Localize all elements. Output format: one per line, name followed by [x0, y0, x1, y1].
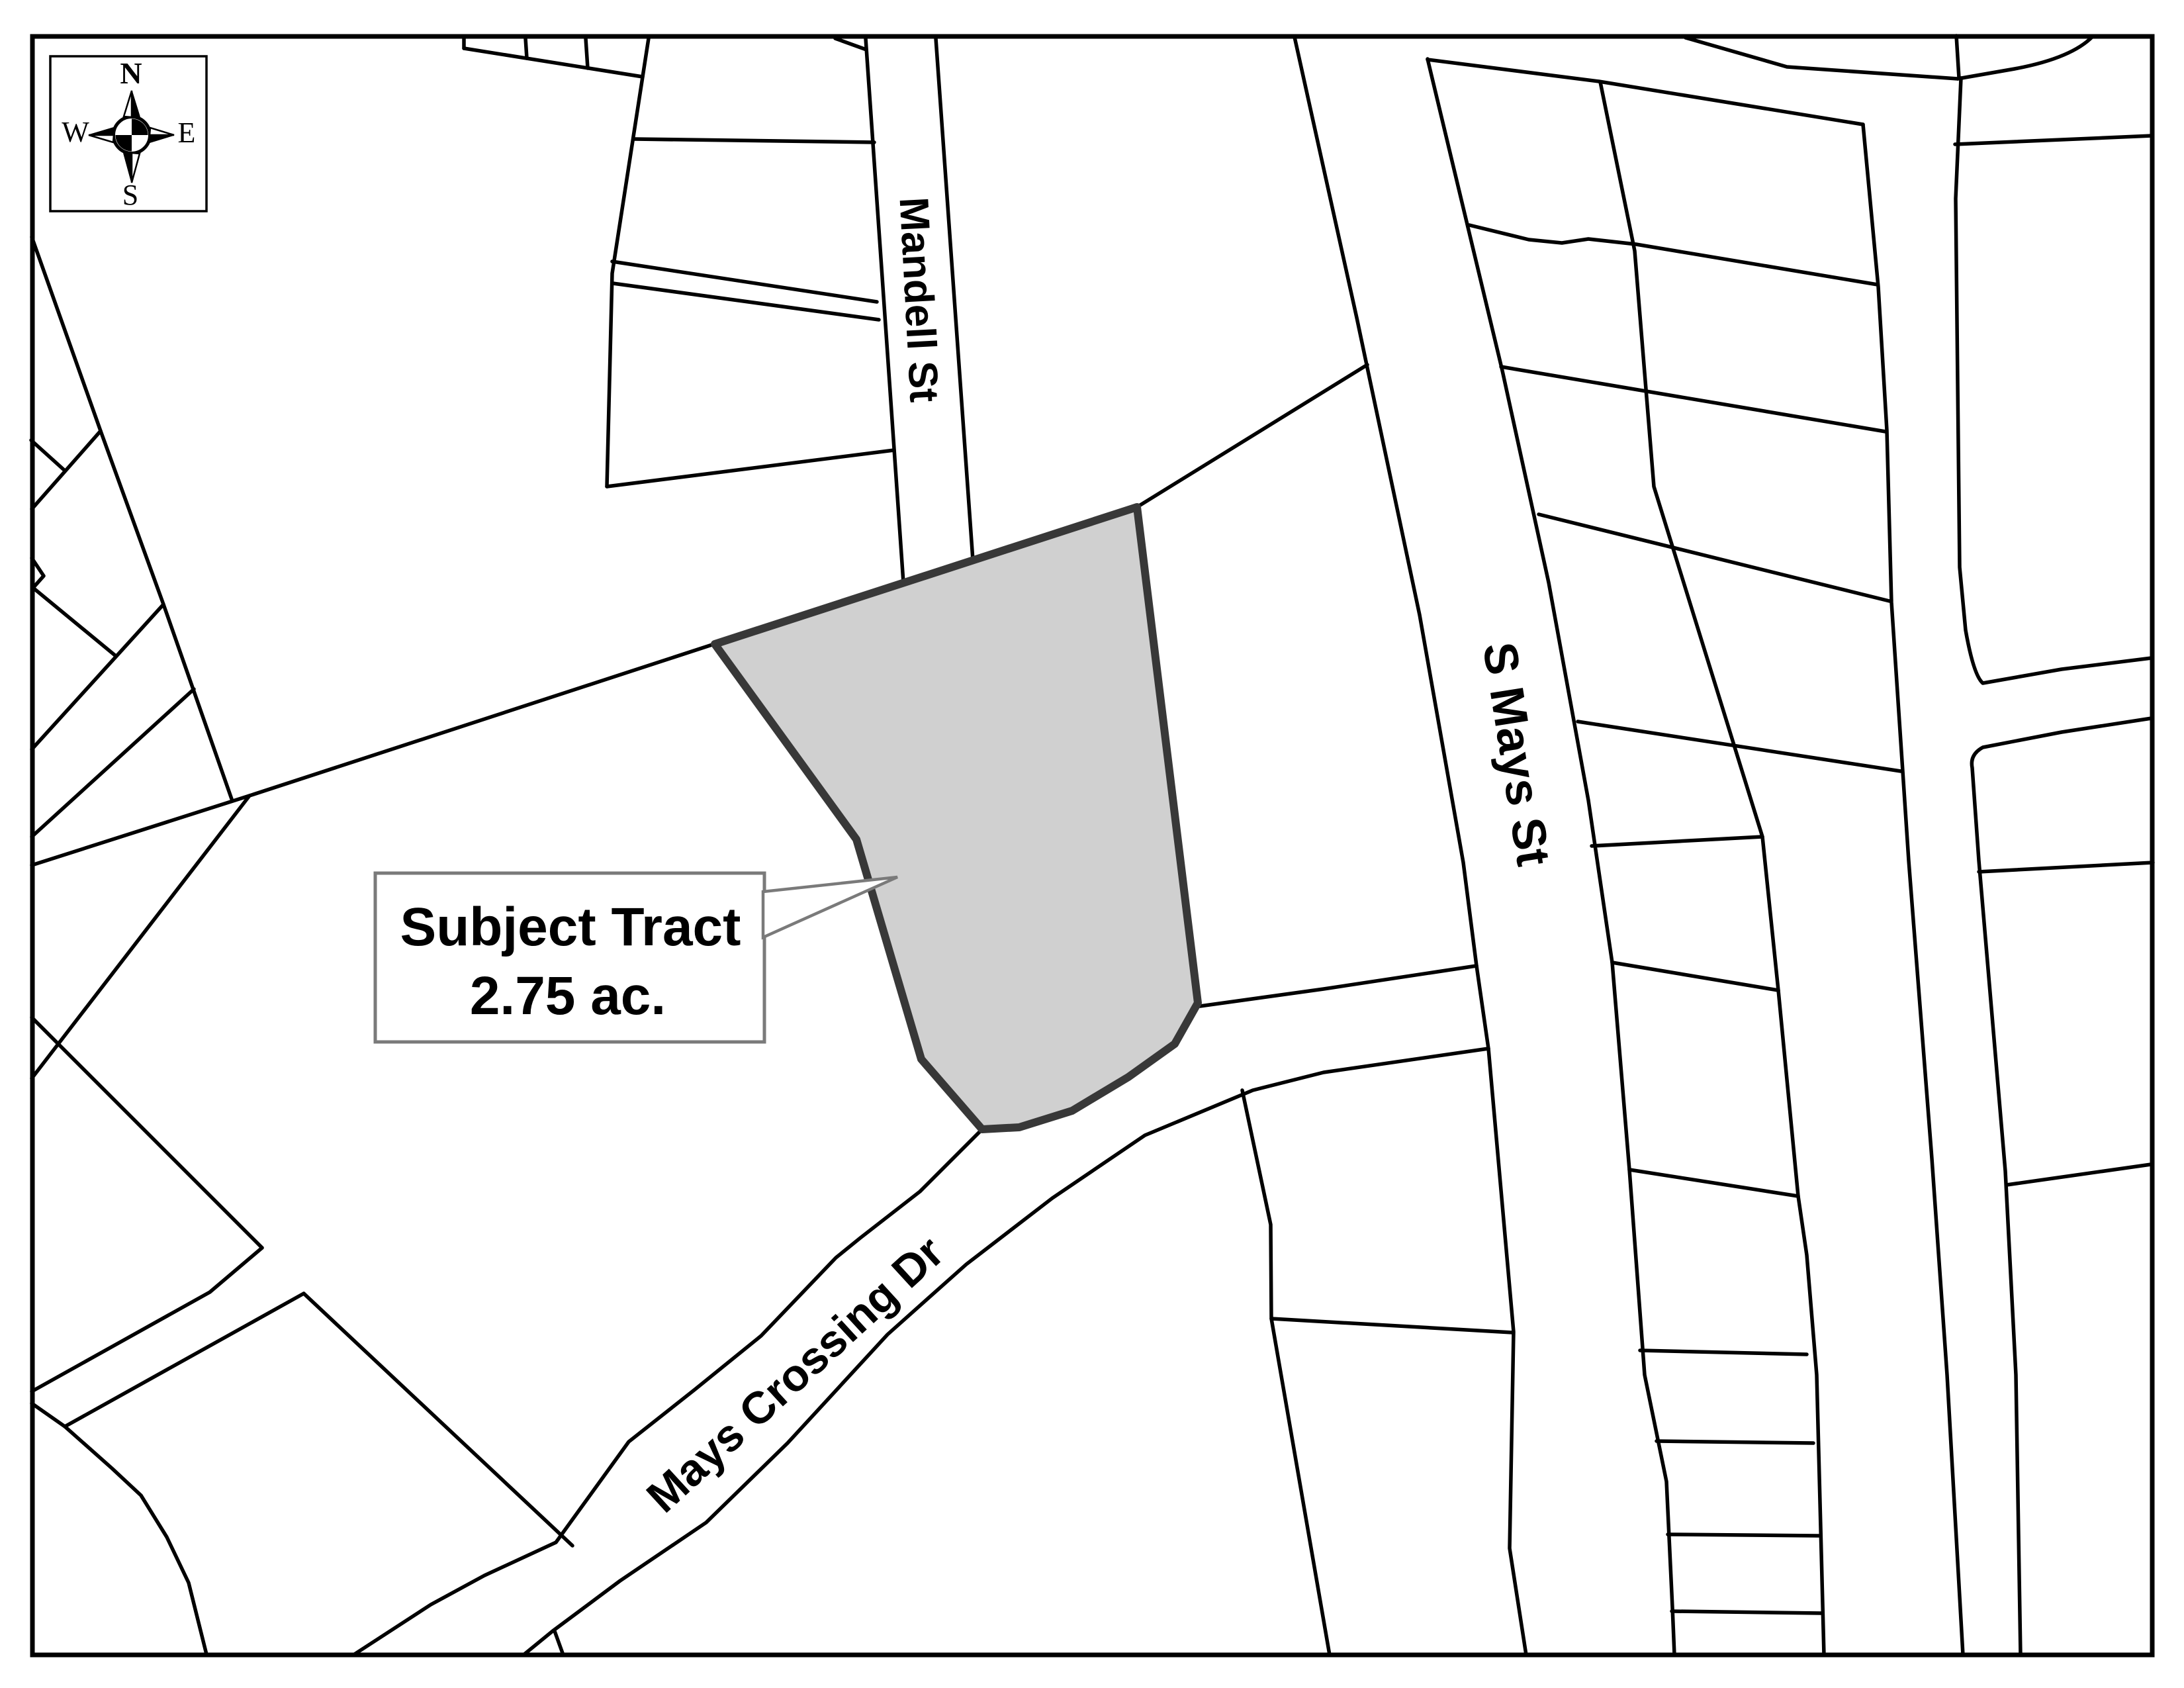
svg-text:Subject Tract: Subject Tract [400, 897, 741, 957]
svg-text:S: S [122, 179, 138, 211]
svg-text:2.75 ac.: 2.75 ac. [470, 966, 666, 1026]
svg-text:N: N [120, 56, 142, 90]
svg-text:E: E [178, 117, 196, 149]
svg-text:W: W [62, 116, 89, 148]
